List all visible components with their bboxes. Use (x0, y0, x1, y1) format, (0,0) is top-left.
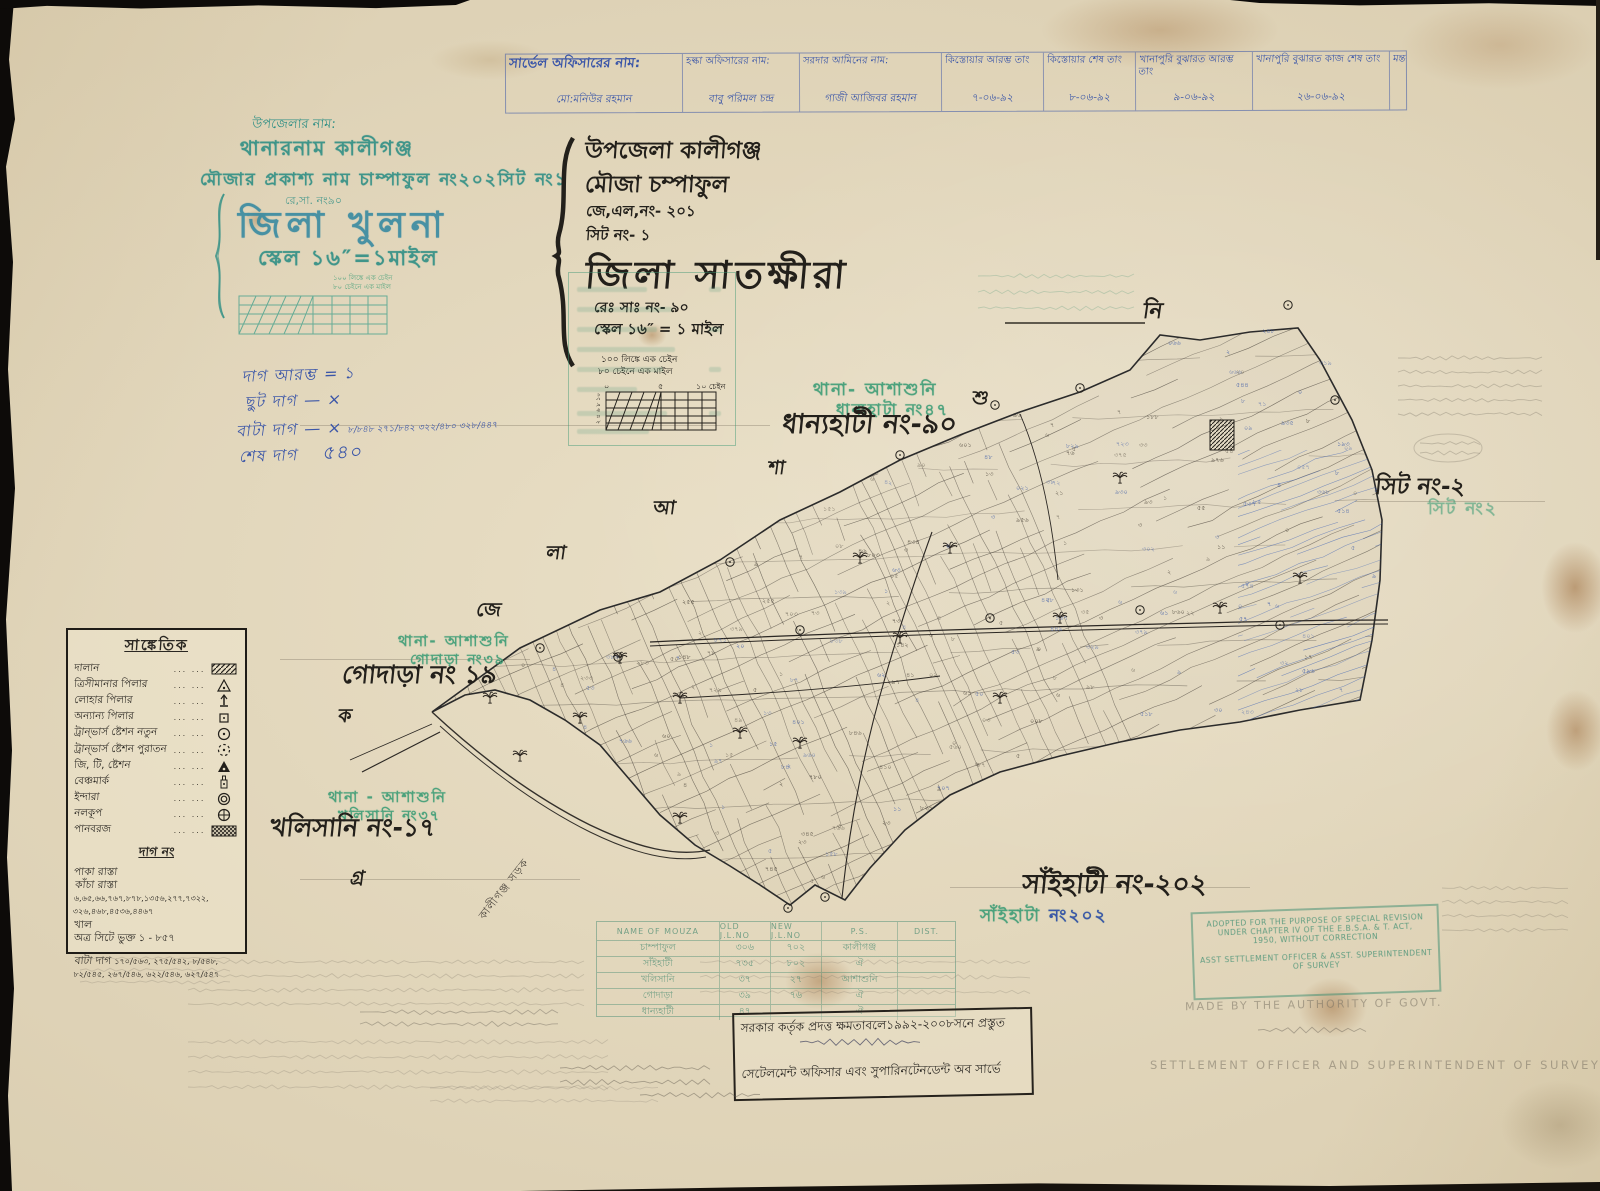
svg-text:৫৩: ৫৩ (586, 684, 595, 692)
dag-number-title: দাগ নং (73, 844, 240, 864)
svg-text:৯৮: ৯৮ (1086, 683, 1095, 691)
svg-text:৫: ৫ (768, 847, 772, 855)
svg-text:৬০১: ৬০১ (959, 441, 972, 449)
mouza-table-header-row: NAME OF MOUZAOLD J.L.NO NEW J.L.NOP.S. D… (597, 922, 955, 940)
svg-text:৭৩: ৭৩ (892, 617, 901, 625)
svg-text:২৯৭: ২৯৭ (887, 678, 900, 686)
svg-text:২: ২ (886, 599, 890, 607)
header-cell-label: খানাপুরি বুঝারত কাজ শেষ তাং (1255, 53, 1386, 65)
svg-text:৪: ৪ (937, 614, 941, 622)
svg-text:৪৯: ৪৯ (734, 716, 743, 724)
stain (1400, 0, 1600, 90)
mouza-table-row: গোদাড়া৩৯ ৭৬ঐ (597, 988, 955, 1004)
svg-text:২: ২ (691, 683, 695, 691)
double-circle-icon (209, 792, 239, 806)
svg-text:১: ১ (709, 741, 713, 749)
svg-text:১৭: ১৭ (1304, 653, 1312, 661)
svg-text:০৯: ০৯ (1344, 444, 1353, 452)
dag-row-paka: পাকা রাস্তা (73, 866, 239, 879)
preparation-stamp-box: সরকার কর্তৃক প্রদত্ত ক্ষমতাবলে১৯৯২-২০০৮স… (732, 1007, 1034, 1101)
scan-edge-bottom (520, 1182, 1600, 1191)
svg-text:৮২৭: ৮২৭ (920, 804, 933, 812)
svg-text:৩০২: ৩০২ (1142, 545, 1155, 553)
svg-text:০৩: ০৩ (982, 716, 991, 724)
svg-text:৭: ৭ (1056, 513, 1060, 521)
header-cell-label: সার্ভেল অফিসারের নাম: (508, 56, 680, 72)
saihati-stamp-number: নং২০২ (1049, 906, 1108, 926)
svg-text:৫১৪: ৫১৪ (1337, 507, 1350, 515)
svg-text:৯৫৬: ৯৫৬ (1016, 516, 1029, 524)
svg-text:৭৩: ৭৩ (811, 609, 820, 617)
svg-text:৩০: ৩০ (1214, 706, 1222, 714)
svg-text:৩৪৫: ৩৪৫ (801, 830, 814, 838)
square-dot-icon (209, 713, 239, 723)
svg-text:১: ১ (1163, 494, 1167, 502)
svg-text:৭: ৭ (676, 654, 680, 662)
svg-text:৮৬০: ৮৬০ (1172, 608, 1185, 616)
svg-text:৩১৯: ৩১৯ (1319, 359, 1332, 367)
header-cell-label: খানাপুরি বুঝারত আরম্ভ তাং (1138, 54, 1250, 77)
svg-text:৯৩: ৯৩ (1144, 498, 1153, 506)
svg-text:১৫৮: ১৫৮ (825, 850, 838, 858)
header-cell-value: ২৬-০৬-৯২ (1255, 89, 1387, 107)
svg-text:২৮৩: ২৮৩ (636, 659, 649, 667)
scan-edge-left (0, 0, 17, 1191)
svg-text:৬২: ৬২ (877, 671, 885, 679)
svg-text:১৩: ১৩ (985, 470, 994, 478)
svg-text:৯৭: ৯৭ (714, 757, 722, 765)
edge-letter-gra: গ্র (348, 864, 367, 896)
svg-text:০৮: ০৮ (835, 542, 844, 550)
svg-text:২: ২ (888, 479, 892, 487)
svg-text:১: ১ (779, 670, 783, 678)
header-cell-value: গাজী আজিবর রহমান (802, 91, 939, 109)
svg-text:৩৭৯: ৩৭৯ (730, 625, 743, 633)
svg-text:০: ০ (1285, 526, 1289, 534)
svg-text:৭৮০: ৭৮০ (809, 773, 822, 781)
svg-text:২: ২ (779, 780, 783, 788)
svg-text:২৪৩: ২৪৩ (1241, 708, 1254, 716)
svg-text:১৫: ১৫ (725, 751, 733, 759)
svg-text:৪: ৪ (560, 681, 564, 689)
svg-text:৭: ৭ (1339, 686, 1343, 694)
svg-text:৫: ৫ (753, 686, 757, 694)
header-cell-value (1393, 106, 1403, 107)
svg-text:৫৬০: ৫৬০ (949, 743, 962, 751)
svg-text:৮০৩: ৮০৩ (867, 551, 880, 559)
svg-text:২৩৩: ২৩৩ (580, 674, 593, 682)
header-cell-value: ৯-০৬-৯২ (1138, 90, 1250, 108)
svg-text:৪০১: ৪০১ (1302, 632, 1315, 640)
header-cell-value: ৮-০৬-৯২ (1046, 90, 1133, 108)
svg-text:৫৩৭: ৫৩৭ (1243, 500, 1256, 508)
godara-label: গোদাড়া নং ১৯ (340, 655, 499, 698)
svg-text:৯৬: ৯৬ (1013, 411, 1022, 419)
circle-cross-icon (209, 808, 239, 822)
svg-text:৫৪: ৫৪ (1225, 447, 1233, 455)
dag-row-khal: খাল (73, 919, 239, 932)
left-scale-bar-diagram (238, 292, 390, 338)
svg-text:৫: ৫ (1072, 445, 1076, 453)
mouza-table-row: চাম্পাফুল৩০৬ ৭০২কালীগঞ্জ (597, 940, 955, 956)
svg-text:৯৭৬: ৯৭৬ (1211, 456, 1224, 464)
svg-text:২০: ২০ (736, 642, 744, 650)
svg-text:৫: ৫ (1351, 544, 1355, 552)
svg-text:৯৬০: ৯৬০ (803, 751, 816, 759)
dag-row-kacha: কাঁচা রাস্তা ৬,৬৫,৬৬,৭৬৭,৮৭৮,১৩৫৬,২৭৭,৭৩… (72, 879, 240, 918)
svg-text:৭: ৭ (1267, 600, 1271, 608)
svg-text:০২১: ০২১ (1016, 484, 1029, 492)
svg-text:৪: ৪ (1277, 481, 1281, 489)
svg-text:৪: ৪ (683, 781, 687, 789)
svg-text:৪০১: ৪০১ (792, 718, 805, 726)
building-hatch-icon (209, 663, 239, 675)
svg-text:২: ২ (787, 762, 791, 770)
svg-text:৯৩৫: ৯৩৫ (1281, 419, 1294, 427)
svg-text:২৩: ২৩ (798, 838, 807, 846)
svg-text:৮৩৮: ৮৩৮ (830, 637, 843, 645)
svg-text:১৩১: ১৩১ (1071, 586, 1084, 594)
edge-letter-je: জে (474, 596, 503, 628)
settlement-officer-pencil-note: SETTLEMENT OFFICER AND SUPERINTENDENT OF… (1150, 1058, 1600, 1072)
svg-text:০৫৭: ০৫৭ (1297, 463, 1310, 471)
settlement-officer-line: সেটেলমেন্ট অফিসার এবং সুপারিনটেনডেন্ট অব… (741, 1060, 1026, 1086)
svg-text:৮৭: ৮৭ (977, 761, 985, 769)
thana-name-line: থানারনাম কালীগঞ্জ (240, 134, 414, 167)
svg-text:৮৪৬: ৮৪৬ (849, 729, 862, 737)
last-dag-number: ৫৪০ (322, 441, 365, 464)
svg-text:৯৩০: ৯৩০ (1115, 488, 1128, 496)
stain (1540, 540, 1600, 635)
svg-text:৮৭: ৮৭ (790, 676, 798, 684)
dag-row-sheet-range: অত্র সিটে ভুক্ত ১ - ৮৫৭ (73, 932, 239, 946)
svg-text:৪: ৪ (552, 665, 556, 673)
saihati-stamp: সাঁইহাটা নং২০২ (980, 903, 1108, 931)
header-cell-value: বাবু পরিমল চন্দ্র (685, 92, 797, 110)
svg-text:৭১: ৭১ (1258, 400, 1266, 408)
blue-note-last-dag: শেষ দাগ ৫৪০ (237, 438, 365, 474)
svg-text:১: ১ (884, 587, 888, 595)
svg-text:১৫১: ১৫১ (823, 505, 836, 513)
svg-text:৫০: ৫০ (975, 690, 983, 698)
svg-text:১৬৭: ১৬৭ (1055, 614, 1068, 622)
upazila-name-label: উপজেলার নাম: (251, 115, 337, 136)
preparation-line: সরকার কর্তৃক প্রদত্ত ক্ষমতাবলে১৯৯২-২০০৮স… (740, 1014, 1025, 1040)
survey-officers-header-table: সার্ভেল অফিসারের নাম:মো:মনিউর রহমান হল্ক… (505, 50, 1407, 113)
svg-text:৬১: ৬১ (1160, 609, 1168, 617)
stain (1500, 1080, 1600, 1170)
svg-text:২৫৫: ২৫৫ (762, 597, 775, 605)
scan-edge-right (1596, 0, 1600, 260)
svg-text:০: ০ (1238, 602, 1242, 610)
left-brace-decoration (210, 192, 228, 320)
svg-text:৭: ৭ (1117, 408, 1121, 416)
dhanyhati-label: ধান্যহাটী নং-৯০ (780, 404, 960, 449)
svg-text:৩৫: ৩৫ (1081, 608, 1089, 616)
svg-text:৭২৯: ৭২৯ (709, 686, 722, 694)
header-cell-label: হল্কা অফিসারের নাম: (685, 56, 796, 68)
svg-text:০: ০ (946, 542, 950, 550)
svg-text:৭: ৭ (1050, 421, 1054, 429)
svg-text:১: ১ (721, 803, 725, 811)
scan-edge-top (0, 0, 470, 9)
legend-box: সাঙ্কেতিক দালান... ... ত্রিসীমানার পিলার… (66, 628, 247, 954)
svg-text:৭৪৫: ৭৪৫ (765, 865, 778, 873)
svg-text:৩৬৮: ৩৬৮ (1317, 488, 1330, 496)
mouza-table-row: সাঁইহাটী৭৩৫ ৮০২ঐ (597, 956, 955, 972)
svg-text:০: ০ (1298, 388, 1302, 396)
svg-text:২: ২ (698, 629, 702, 637)
svg-text:০: ০ (1245, 579, 1249, 587)
svg-text:৫৪৪: ৫৪৪ (1236, 381, 1249, 389)
svg-text:৪: ৪ (902, 623, 906, 631)
svg-text:৭৮: ৭৮ (707, 649, 716, 657)
header-cell-label: মন্তব্য: (1392, 53, 1403, 65)
svg-text:০: ০ (1353, 489, 1357, 497)
svg-text:৪১: ৪১ (906, 671, 914, 679)
svg-text:২: ২ (1226, 348, 1230, 356)
svg-text:৫১৮: ৫১৮ (1140, 710, 1153, 718)
jl-number: জে,এল,নং- ২০১ (585, 200, 696, 225)
mouza-table-row: খলিসানি৩৭ ২৭আশাশুনি (597, 972, 955, 988)
svg-text:২৩: ২৩ (882, 819, 891, 827)
dashed-circle-dot-icon (209, 743, 239, 757)
scanned-mouza-map-sheet: সার্ভেল অফিসারের নাম:মো:মনিউর রহমান হল্ক… (0, 0, 1600, 1191)
svg-text:৫৯৬: ৫৯৬ (1302, 667, 1315, 675)
svg-text:৪৮: ৪৮ (984, 453, 993, 461)
svg-text:২: ২ (1167, 568, 1171, 576)
svg-text:৪: ৪ (915, 696, 919, 704)
svg-text:৩২৯: ৩২৯ (1086, 643, 1099, 651)
svg-text:৭৬৬: ৭৬৬ (619, 737, 632, 745)
header-cell-label: কিস্তোয়ার শেষ তাং (1046, 54, 1132, 66)
circle-dot-icon (209, 727, 239, 741)
svg-text:৯০: ৯০ (917, 461, 925, 469)
header-cell-value: ৭-০৬-৯২ (944, 91, 1041, 109)
triangle-dot-icon (209, 679, 239, 692)
legend-title: সাঙ্কেতিক (73, 634, 240, 659)
svg-text:৪: ৪ (884, 478, 888, 486)
svg-text:৩৮: ৩৮ (1046, 478, 1055, 486)
svg-text:৫: ৫ (810, 877, 814, 885)
svg-text:৫: ৫ (999, 619, 1003, 627)
svg-text:৪: ৪ (583, 723, 587, 731)
svg-text:৬৬৬: ৬৬৬ (1229, 368, 1242, 376)
svg-text:৪৪৯: ৪৪৯ (1050, 625, 1063, 633)
svg-text:৭: ৭ (799, 553, 803, 561)
svg-text:২৫৫: ২৫৫ (682, 598, 695, 606)
svg-text:৩৭৫: ৩৭৫ (1114, 451, 1127, 459)
svg-text:৮৭১: ৮৭১ (714, 636, 727, 644)
svg-text:০৫: ০৫ (890, 572, 898, 580)
svg-text:৪৩৪: ৪৩৪ (907, 538, 920, 546)
mouza-reference-table: NAME OF MOUZAOLD J.L.NO NEW J.L.NOP.S. D… (596, 921, 956, 1017)
blue-note-chhut-dag: ছুট দাগ — × (244, 386, 344, 416)
svg-text:১১: ১১ (893, 805, 901, 813)
svg-text:১১: ১১ (1217, 543, 1225, 551)
svg-text:৪৬: ৪৬ (858, 547, 867, 555)
edge-letter-a: আ (651, 494, 678, 526)
svg-text:৭০৩: ৭০৩ (785, 610, 798, 618)
svg-text:৫৫: ৫৫ (1197, 504, 1205, 512)
svg-text:১৫: ১৫ (769, 740, 777, 748)
header-cell-value: মো:মনিউর রহমান (508, 92, 680, 111)
svg-text:৫৩: ৫৩ (1011, 648, 1020, 656)
svg-text:৬০: ৬০ (662, 732, 670, 740)
svg-text:৫৭: ৫৭ (1239, 615, 1247, 623)
svg-text:২৮: ২৮ (1295, 686, 1304, 694)
stain (1545, 688, 1600, 773)
svg-text:১: ১ (1063, 539, 1067, 547)
svg-text:০০৮: ০০৮ (1030, 717, 1043, 725)
svg-text:৩৩: ৩৩ (1139, 441, 1148, 449)
svg-text:৭২৩: ৭২৩ (1116, 440, 1129, 448)
svg-text:৫: ৫ (1016, 752, 1020, 760)
svg-text:০৯: ০৯ (1244, 424, 1253, 432)
adopted-stamp-box: ADOPTED FOR THE PURPOSE OF SPECIAL REVIS… (1191, 904, 1442, 1001)
dag-row-bata: বাটা দাগ ১৭০/৫৬৩, ২৭৫/৫৪২, ৮/৫৪৮, ৮২/৫৪৫… (73, 955, 240, 981)
svg-text:২৪৮: ২৪৮ (1262, 327, 1275, 335)
crosshatch-rect-icon (209, 825, 239, 837)
svg-text:২১: ২১ (1055, 489, 1063, 497)
svg-text:৩২: ৩২ (1280, 659, 1288, 667)
svg-text:২২: ২২ (1186, 609, 1194, 617)
sheet-2-stamp: সিট নং২ (1428, 496, 1498, 524)
svg-text:০: ০ (521, 661, 525, 669)
mouza-public-name-line: মৌজার প্রকাশ্য নাম চাম্পাফুল নং২০২সিট নং… (200, 167, 568, 195)
filled-triangle-icon (209, 760, 239, 773)
svg-text:১৮৮: ১৮৮ (1146, 413, 1159, 421)
svg-text:৪২৮: ৪২৮ (1041, 596, 1054, 604)
svg-text:০২: ০২ (929, 671, 937, 679)
header-cell-label: কিস্তোয়ার আরম্ভ তাং (944, 55, 1040, 67)
benchmark-icon (209, 775, 239, 789)
svg-text:৩৮৬: ৩৮৬ (606, 653, 619, 661)
scan-edge-top-right (1230, 0, 1600, 6)
svg-text:৬১: ৬১ (963, 689, 971, 697)
svg-text:১৪২: ১৪২ (896, 641, 909, 649)
khalisani-label: খলিসানি নং-১৭ (268, 808, 438, 851)
iron-pillar-icon (209, 694, 239, 708)
svg-text:৪১০: ৪১০ (879, 763, 892, 771)
svg-text:৩৭৯: ৩৭৯ (1135, 628, 1148, 636)
svg-text:১৩৯: ১৩৯ (834, 588, 847, 596)
svg-text:০৬৬: ০৬৬ (1168, 339, 1181, 347)
header-cell-label: সরদার আমিনের নাম: (802, 55, 938, 67)
svg-text:৭৬৬: ৭৬৬ (832, 824, 845, 832)
svg-text:১৩: ১৩ (763, 709, 772, 717)
edge-letter-ka: ক (336, 702, 354, 734)
